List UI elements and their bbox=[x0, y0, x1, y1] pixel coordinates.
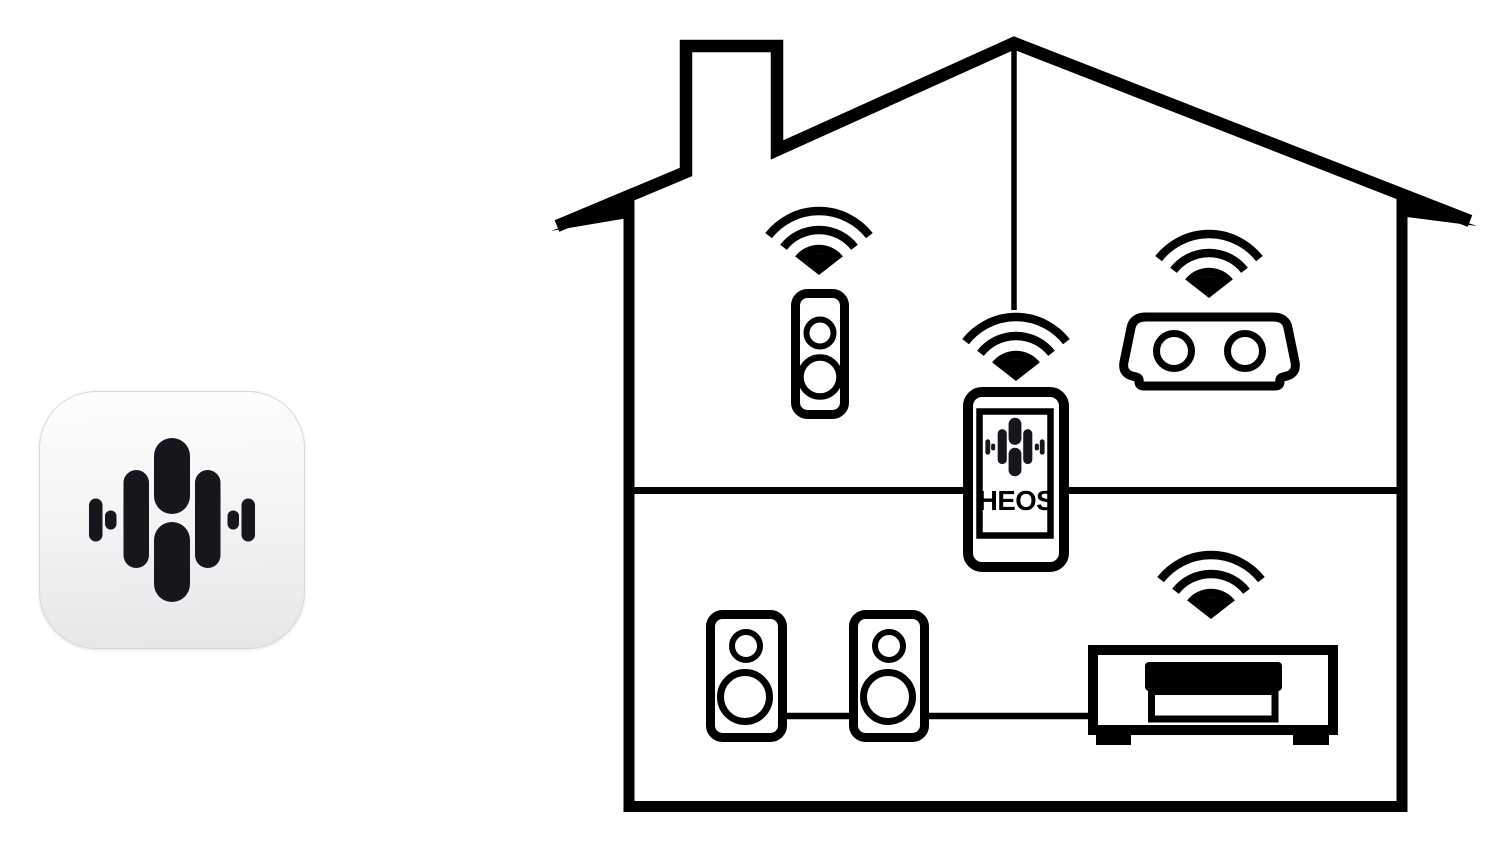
house-diagram: HEOS bbox=[0, 0, 1506, 850]
wifi-icon bbox=[1161, 555, 1262, 619]
portable-speaker-icon bbox=[1124, 317, 1296, 386]
wireless-speaker bbox=[796, 294, 845, 415]
portable-speaker bbox=[1124, 317, 1296, 386]
wifi-icon bbox=[966, 317, 1067, 381]
receiver-foot-right bbox=[1293, 734, 1329, 745]
bookshelf-speaker-right bbox=[854, 615, 925, 738]
phone-screen-label: HEOS bbox=[978, 485, 1054, 516]
receiver-foot-left bbox=[1096, 734, 1131, 745]
bookshelf-speaker-left bbox=[711, 615, 783, 738]
wifi-icon bbox=[1159, 234, 1260, 298]
smartphone: HEOS bbox=[968, 392, 1064, 567]
av-receiver bbox=[1093, 650, 1333, 745]
wifi-icon bbox=[769, 211, 870, 275]
receiver-tray bbox=[1152, 692, 1276, 720]
illustration-canvas: HEOS bbox=[0, 0, 1506, 850]
receiver-display bbox=[1145, 662, 1282, 691]
